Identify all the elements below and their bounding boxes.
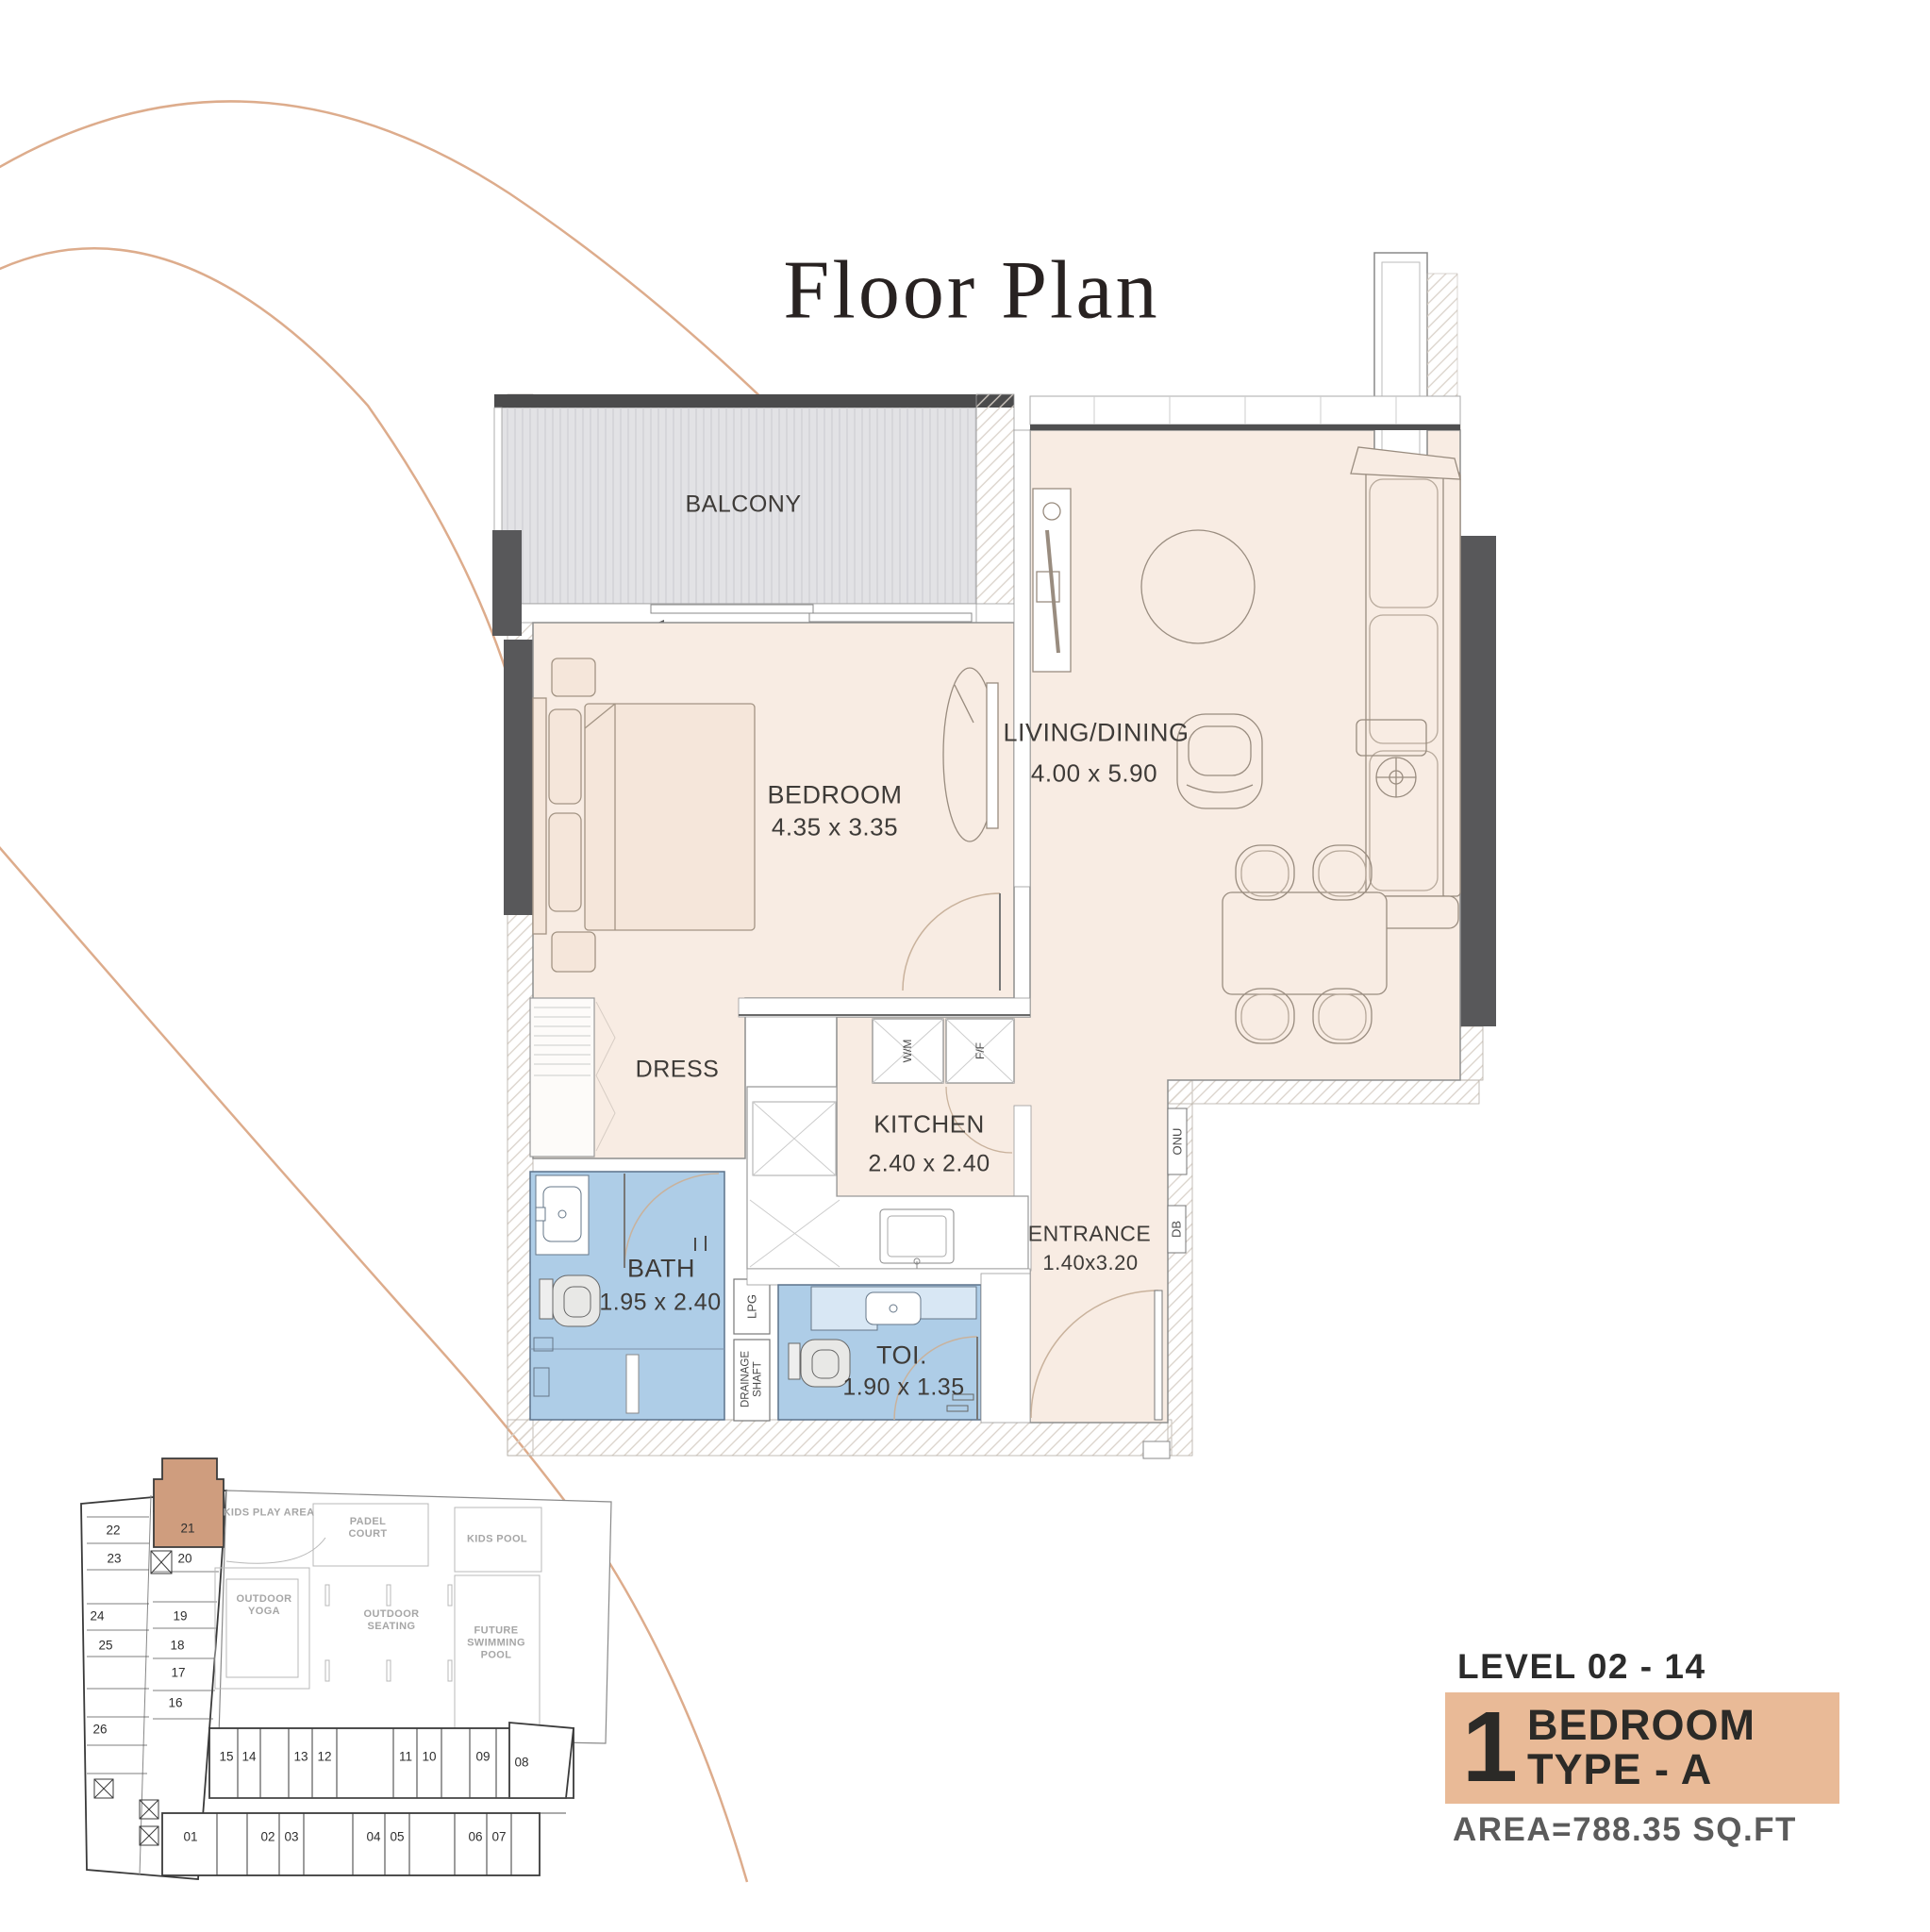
dress-label: DRESS	[636, 1057, 720, 1084]
bedroom-label: BEDROOM	[767, 781, 902, 810]
unit-23: 23	[107, 1552, 121, 1566]
living-dims: 4.00 x 5.90	[1031, 759, 1157, 789]
wall-block	[504, 640, 535, 915]
unit-10: 10	[422, 1750, 436, 1764]
kitchen-dims: 2.40 x 2.40	[868, 1151, 990, 1178]
living-label: LIVING/DINING	[1003, 719, 1189, 748]
page-title: Floor Plan	[783, 243, 1159, 339]
bedroom-wardrobe	[943, 668, 998, 841]
unit-14: 14	[241, 1750, 256, 1764]
bath-dims: 1.95 x 2.40	[599, 1290, 721, 1317]
wall-block	[1460, 536, 1496, 1026]
unit-09: 09	[475, 1750, 490, 1764]
onu-label: ONU	[1171, 1128, 1185, 1156]
unit-12: 12	[317, 1750, 331, 1764]
unit-08: 08	[514, 1756, 528, 1770]
entrance-dims: 1.40x3.20	[1042, 1251, 1138, 1275]
fridge-freezer-label: F/F	[973, 1042, 987, 1059]
unit-20: 20	[177, 1552, 191, 1566]
unit-24: 24	[90, 1609, 104, 1624]
outdoor-yoga-label: OUTDOOR YOGA	[230, 1593, 298, 1618]
unit-06: 06	[468, 1830, 482, 1844]
balcony-label: BALCONY	[686, 491, 802, 519]
window-band	[1030, 396, 1460, 430]
unit-05: 05	[390, 1830, 404, 1844]
db-label: DB	[1170, 1221, 1184, 1238]
entrance-label: ENTRANCE	[1028, 1222, 1152, 1247]
page: Floor Plan BALCONY BEDROOM 4.35 x 3.35 L…	[0, 0, 1930, 1932]
level-text: LEVEL 02 - 14	[1457, 1647, 1706, 1687]
unit-04: 04	[366, 1830, 380, 1844]
area-text: AREA=788.35 SQ.FT	[1453, 1811, 1797, 1849]
kids-play-area-label: KIDS PLAY AREA	[224, 1507, 315, 1520]
unit-19: 19	[173, 1609, 187, 1624]
bedroom-dims: 4.35 x 3.35	[772, 813, 898, 842]
wall-block	[492, 530, 522, 636]
unit-11: 11	[399, 1750, 412, 1764]
bath-label: BATH	[627, 1255, 695, 1284]
lpg-label: LPG	[745, 1294, 759, 1319]
kitchen-label: KITCHEN	[873, 1110, 985, 1140]
unit-03: 03	[284, 1830, 298, 1844]
unit-02: 02	[260, 1830, 275, 1844]
unit-13: 13	[293, 1750, 308, 1764]
unit-26: 26	[92, 1723, 107, 1737]
toilet-dims: 1.90 x 1.35	[842, 1374, 964, 1402]
unit-21: 21	[180, 1522, 194, 1536]
unit-22: 22	[106, 1524, 120, 1538]
unit-07: 07	[491, 1830, 506, 1844]
future-swimming-pool-label: FUTURE SWIMMING POOL	[456, 1625, 537, 1662]
drainage-shaft-label: DRAINAGE SHAFT	[740, 1349, 763, 1409]
unit-type-line1: BEDROOM	[1527, 1704, 1755, 1748]
unit-25: 25	[98, 1639, 112, 1653]
unit-type-badge: 1 BEDROOM TYPE - A	[1445, 1692, 1839, 1804]
unit-15: 15	[219, 1750, 233, 1764]
unit-01: 01	[183, 1830, 197, 1844]
outdoor-seating-label: OUTDOOR SEATING	[354, 1608, 429, 1633]
washing-machine-label: W/M	[901, 1040, 914, 1063]
padel-court-label: PADEL COURT	[337, 1516, 399, 1541]
kids-pool-label: KIDS POOL	[467, 1534, 527, 1546]
unit-16: 16	[168, 1696, 182, 1710]
unit-18: 18	[170, 1639, 184, 1653]
unit-count: 1	[1462, 1704, 1518, 1791]
unit-17: 17	[171, 1666, 185, 1680]
toilet-label: TOI.	[876, 1341, 927, 1371]
unit-type-line2: TYPE - A	[1527, 1748, 1755, 1792]
